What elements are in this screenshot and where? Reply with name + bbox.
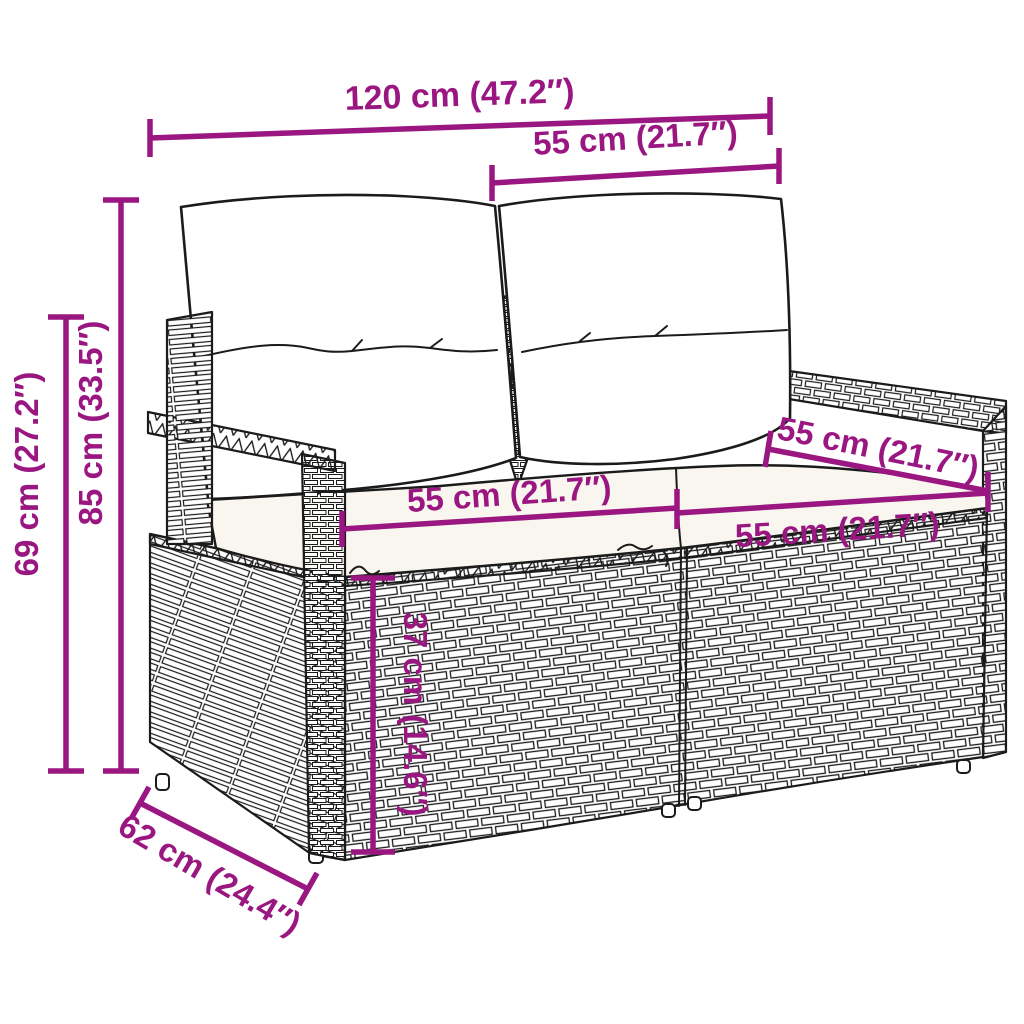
sofa-leg <box>688 797 701 810</box>
dim-seat-height-label: 37 cm (14.6″) <box>397 612 434 817</box>
dim-total-height: 85 cm (33.5″) <box>72 200 139 771</box>
dim-total-height-label: 85 cm (33.5″) <box>72 321 109 526</box>
dim-back-section-width: 55 cm (21.7″) <box>492 113 779 201</box>
product-dimension-diagram: 120 cm (47.2″) 55 cm (21.7″) 85 cm (33.5… <box>0 0 1024 1024</box>
left-armrest-front-post <box>302 454 345 860</box>
dim-back-section-width-label: 55 cm (21.7″) <box>532 113 739 162</box>
sofa-leg <box>957 760 970 773</box>
left-armrest-back-post <box>167 312 212 544</box>
sofa-leg <box>662 804 675 817</box>
back-cushion-right <box>499 193 790 464</box>
sofa-leg <box>156 774 169 790</box>
rattan-loveseat-dimension-drawing: 120 cm (47.2″) 55 cm (21.7″) 85 cm (33.5… <box>0 0 1024 1024</box>
back-cushion-left <box>181 195 516 499</box>
dim-total-width-label: 120 cm (47.2″) <box>344 72 575 118</box>
dim-arm-height-label: 69 cm (27.2″) <box>8 372 45 577</box>
